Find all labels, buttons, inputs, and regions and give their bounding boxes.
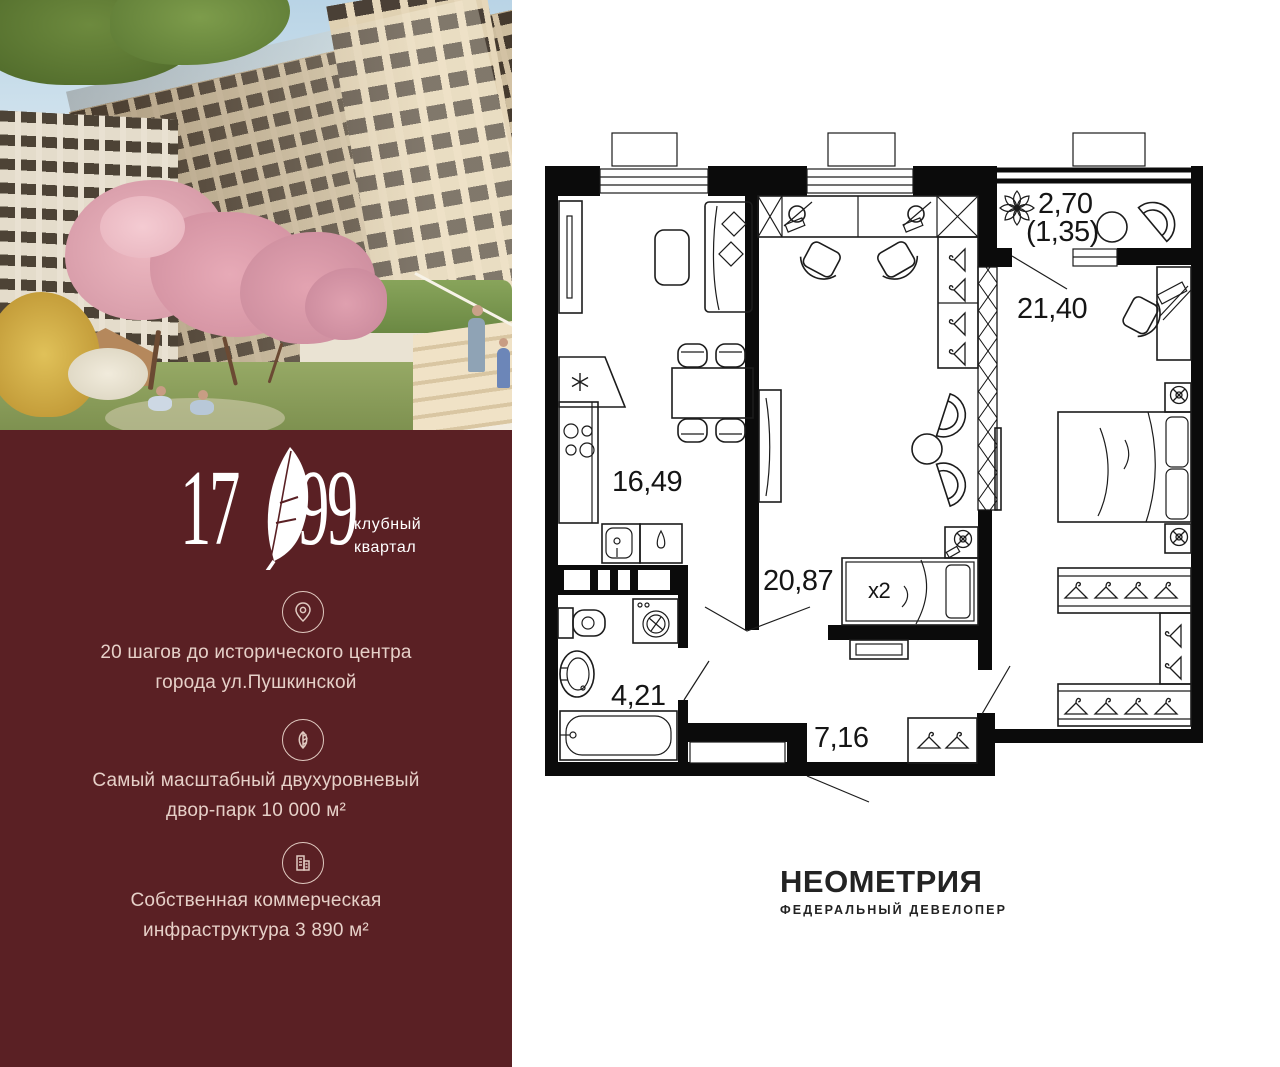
room-label-bedroom: 21,40 (1017, 293, 1087, 326)
developer-name: НЕОМЕТРИЯ (780, 864, 1007, 900)
kitchen-cabinet (640, 524, 682, 563)
stove (564, 424, 594, 457)
kitchen-sink (602, 524, 640, 563)
balcony-table (1097, 212, 1127, 242)
office-chair (872, 238, 923, 286)
developer-logo: НЕОМЕТРИЯ ФЕДЕРАЛЬНЫЙ ДЕВЕЛОПЕР (780, 864, 1007, 917)
desk-row (758, 196, 978, 237)
vent-shaft (558, 565, 678, 595)
sliding-partition (978, 267, 997, 510)
shoe-cabinet (850, 640, 908, 659)
washing-machine (633, 599, 678, 643)
coffee-table (655, 230, 689, 285)
side-table (912, 434, 942, 464)
wardrobe-bedroom-top (1058, 568, 1191, 613)
double-bed (1058, 412, 1191, 522)
hall-wardrobe (908, 718, 977, 763)
room-label-living: 20,87 (763, 565, 833, 598)
floor-plan-drawing (0, 0, 1280, 1067)
wardrobe-bedroom-bottom (1058, 684, 1191, 726)
kitchen-tv-unit (559, 201, 582, 313)
developer-tagline: ФЕДЕРАЛЬНЫЙ ДЕВЕЛОПЕР (780, 903, 1007, 917)
entrance-door (690, 742, 785, 763)
bathtub (560, 711, 677, 760)
wall-mirror (759, 390, 781, 502)
nightstand (1165, 524, 1191, 553)
exterior-ledges (612, 133, 1145, 166)
armchair (937, 394, 972, 443)
wall-lamp-box (945, 527, 978, 558)
wardrobe-living (938, 237, 978, 368)
kitchen-counter (559, 402, 598, 523)
sofa (705, 202, 752, 312)
room-label-hallway: 7,16 (814, 722, 868, 755)
nightstand (1165, 383, 1191, 412)
bathroom-sink (560, 651, 594, 697)
flyer-page: { "brand": { "panel_bg": "#5a2024", "tex… (0, 0, 1280, 1067)
dining-set (672, 344, 753, 442)
armchair (937, 457, 972, 506)
office-chair (795, 238, 846, 286)
closet-side (1160, 613, 1191, 684)
room-label-balcony-reduced: (1,35) (1026, 216, 1099, 249)
room-label-bed-multiplier: x2 (868, 578, 890, 604)
room-label-kitchen: 16,49 (612, 466, 682, 499)
door-lines (684, 256, 1067, 802)
daybed (842, 558, 978, 625)
bedroom-desk (1157, 267, 1191, 360)
toilet (558, 608, 605, 638)
fridge (559, 357, 625, 407)
balcony-armchair (1138, 194, 1183, 242)
room-label-bathroom: 4,21 (611, 680, 665, 713)
